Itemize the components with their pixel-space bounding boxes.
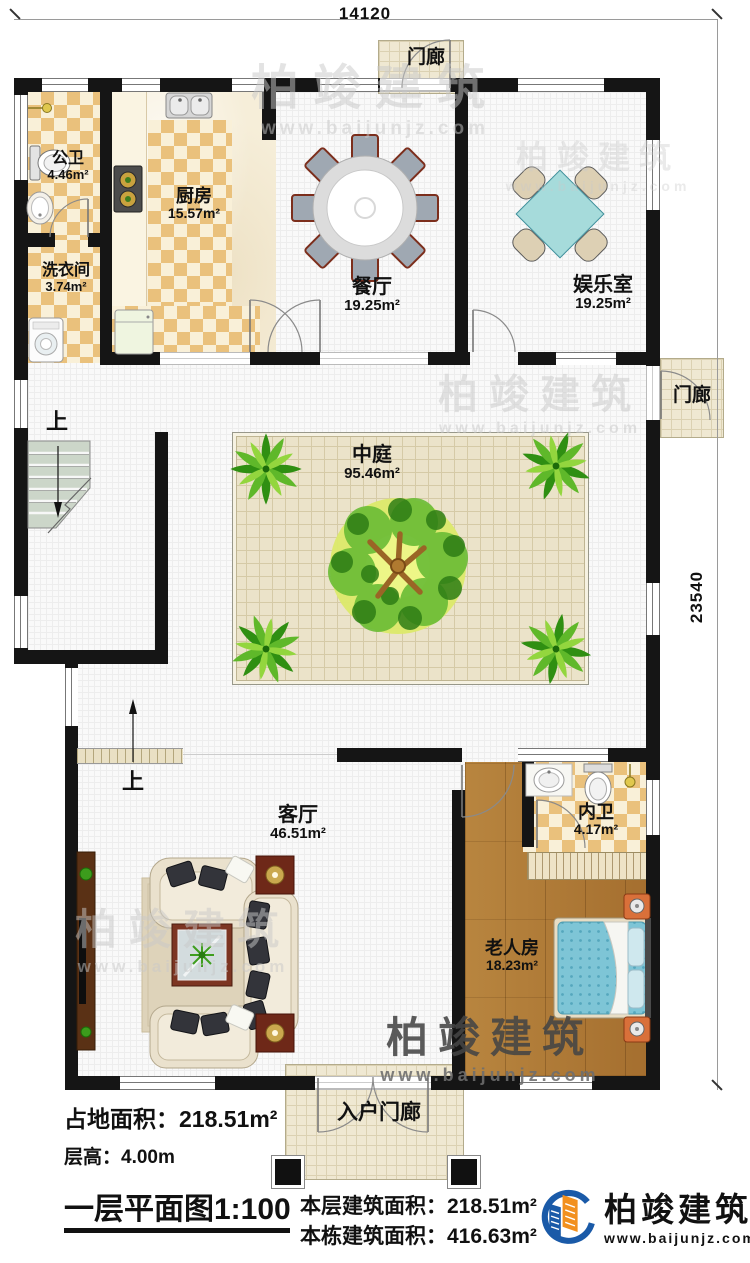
window [320,78,378,92]
window [14,95,28,180]
window [42,78,88,92]
dimension-height: 23540 [687,549,709,645]
wall [65,664,78,1090]
wall [262,92,276,140]
dimension-line-right [717,19,718,1090]
room-label-entertainment: 娱乐室19.25m² [552,274,654,313]
window [120,1076,215,1090]
door-opening [380,78,450,92]
dimension-width: 14120 [300,4,430,24]
window [14,380,28,428]
brand-logo-icon [536,1186,598,1253]
brand-name: 柏竣建筑 [604,1193,750,1228]
window [65,668,78,726]
stairs-up-label: 上 [46,404,68,436]
window [646,140,660,210]
exterior-mask [28,664,65,1090]
door-opening [320,352,428,365]
wall [455,92,468,352]
wall [155,432,168,664]
room-label-elderly-bedroom: 老人房18.23m² [470,938,554,974]
window [232,78,264,92]
laundry-floor [28,240,100,363]
plan-title: 一层平面图1:100 [64,1184,291,1228]
kitchen-counter [112,92,147,310]
wall [100,92,112,352]
kitchen-floor-strip [112,306,260,352]
room-label-atrium: 中庭95.46m² [330,444,414,483]
floor-plan: 公卫4.46m² 洗衣间3.74m² 厨房15.57m² 餐厅19.25m² 娱… [0,0,750,1263]
wardrobe [527,852,648,880]
room-label-dining: 餐厅19.25m² [330,276,414,315]
room-label-public-bathroom: 公卫4.46m² [35,150,101,182]
room-label-living: 客厅46.51m² [254,804,342,843]
wall [616,352,646,365]
wall [428,352,470,365]
room-label-ensuite: 内卫4.17m² [562,802,630,838]
window [556,352,616,365]
floor-height: 层高：4.00m [64,1142,175,1169]
wall [608,748,646,762]
dimension-tick [9,8,20,19]
brand-url: www.baijunjz.com [604,1231,750,1246]
door-opening [646,366,660,420]
footprint-area: 占地面积：218.51m² [64,1100,277,1134]
room-label-laundry: 洗衣间3.74m² [28,262,104,294]
wall [337,748,462,762]
room-label-kitchen: 厨房15.57m² [148,186,240,222]
wall [100,352,160,365]
dimension-tick [711,8,722,19]
floor-edge [183,754,337,755]
wall [28,233,55,247]
wall [452,790,465,1076]
building-built-area: 本栋建筑面积：416.63m² [300,1220,537,1250]
porch-label-entry: 入户门廊 [306,1096,452,1126]
window [518,78,604,92]
window [646,780,660,835]
wall [518,352,556,365]
door-opening [315,1076,431,1090]
window [518,748,608,762]
wall [14,650,168,664]
window [520,1076,592,1090]
wall [250,352,320,365]
porch-column [448,1156,480,1188]
title-underline [64,1228,290,1233]
porch-label-top: 门廊 [398,42,454,69]
stairs-up-label: 上 [122,764,144,796]
window [646,583,660,635]
floor-built-area: 本层建筑面积：218.51m² [300,1190,537,1220]
door-opening [160,352,250,365]
brand-logo: 柏竣建筑 www.baijunjz.com [536,1186,750,1253]
window [122,78,160,92]
wall [522,762,534,847]
wall [88,233,112,247]
window-sill [77,748,183,764]
porch-label-right: 门廊 [664,380,720,407]
window [14,596,28,648]
